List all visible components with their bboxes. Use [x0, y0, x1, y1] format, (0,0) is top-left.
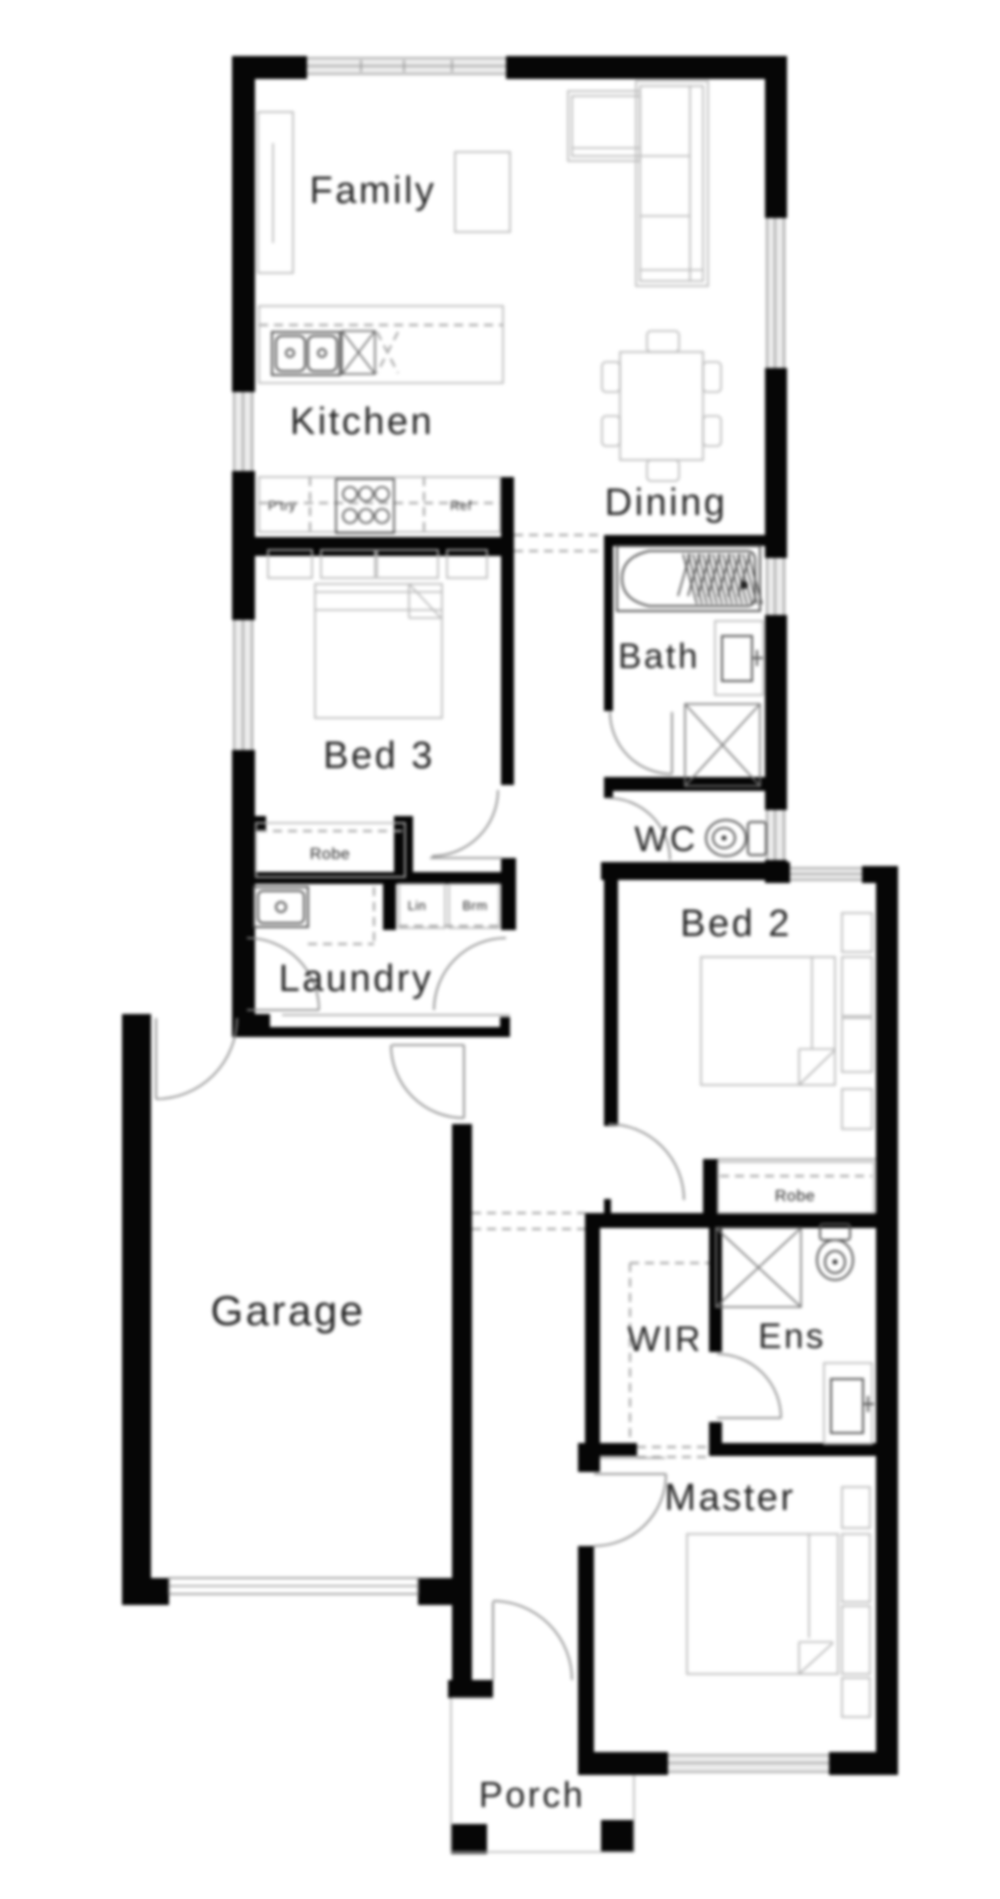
svg-text:Dining: Dining	[605, 482, 728, 524]
svg-text:Family: Family	[310, 170, 437, 212]
svg-text:Garage: Garage	[210, 1287, 365, 1334]
svg-text:Kitchen: Kitchen	[290, 401, 434, 443]
svg-text:Ens: Ens	[758, 1317, 826, 1356]
svg-text:Bed 3: Bed 3	[323, 735, 435, 777]
svg-text:Bed 2: Bed 2	[680, 903, 792, 945]
svg-text:Laundry: Laundry	[279, 958, 434, 1000]
svg-text:Porch: Porch	[479, 1774, 586, 1815]
svg-text:Master: Master	[664, 1477, 795, 1519]
svg-text:Brm: Brm	[462, 898, 487, 913]
svg-text:Ref: Ref	[450, 498, 472, 513]
svg-text:Lin: Lin	[408, 898, 427, 913]
svg-text:WIR: WIR	[627, 1320, 703, 1359]
svg-text:Robe: Robe	[310, 846, 350, 863]
svg-text:Robe: Robe	[775, 1188, 815, 1205]
svg-text:WC: WC	[634, 820, 697, 859]
svg-text:Bath: Bath	[618, 637, 700, 676]
svg-text:P'try: P'try	[268, 498, 296, 513]
